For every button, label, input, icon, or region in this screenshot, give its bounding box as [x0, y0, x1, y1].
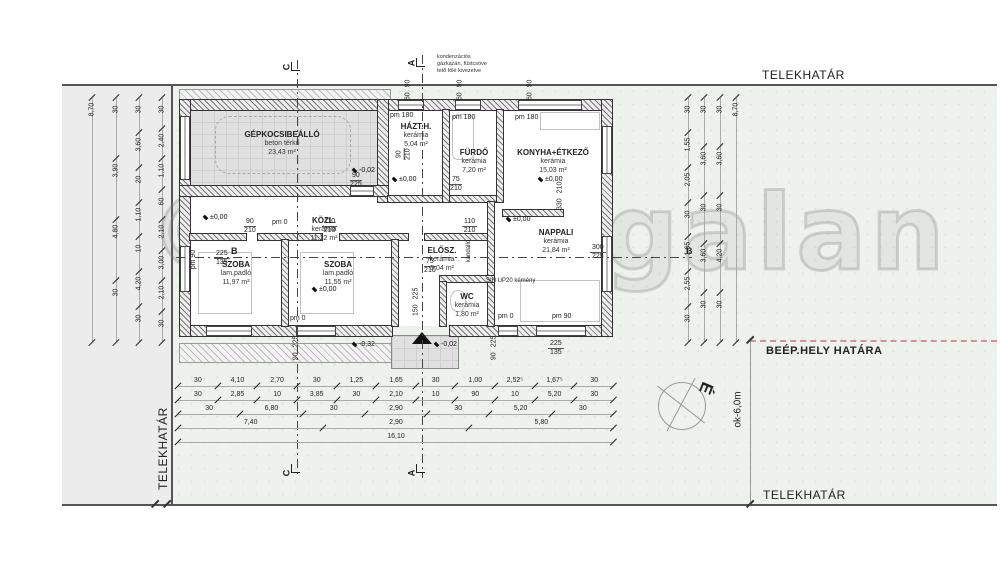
section-tick: [416, 58, 425, 67]
dim-segment: 30: [696, 98, 712, 147]
dim-segment: 90: [455, 391, 495, 403]
dim-segment: 1,67⁵: [535, 377, 575, 389]
dim-segment: 30: [131, 307, 147, 342]
section-letter-c-top: C: [281, 64, 291, 71]
window-south-szoba2: [296, 326, 336, 336]
room-label-elosz: ELŐSZ. kerámia 5,04 m²: [414, 246, 470, 274]
dim-segment: 20: [131, 168, 147, 203]
dim-segment: 2,52⁵: [495, 377, 535, 389]
dim-segment: 4,10: [218, 377, 258, 389]
dim-segment: 1,65: [376, 377, 416, 389]
telekhatar-label-top: TELEKHATÁR: [762, 68, 845, 82]
room-label-konyha: KONYHA+ÉTKEZŐ kerámia 15,03 m²: [505, 148, 601, 176]
plot-boundary-bottom: [62, 504, 997, 506]
dim-chain-right-1: 301,552,05301,652,5530: [680, 98, 696, 342]
dim-segment: 10: [495, 391, 535, 403]
dim-chain-left-2: 303,904,8030: [108, 98, 124, 342]
level-mark: -0,02: [434, 341, 457, 348]
dim-segment: 2,55: [680, 272, 696, 307]
room-label-garage: GÉPKOCSIBEÁLLÓ beton térkő 23,43 m²: [222, 130, 342, 158]
dim-segment: 1,00: [455, 377, 495, 389]
dim-segment: 30: [154, 98, 170, 129]
driveway-strip: [180, 90, 390, 100]
dim-chain-bottom-total: 16,10: [178, 433, 614, 445]
room-label-wc: WC kerámia 1,80 m²: [446, 292, 488, 320]
level-flag-icon: [434, 342, 440, 348]
dim-segment: 30: [416, 377, 456, 389]
level-mark: ±0,00: [506, 216, 530, 223]
telekhatar-label-bottom: TELEKHATÁR: [763, 488, 846, 502]
opening-label-kozl-door1: 110210: [322, 218, 337, 234]
section-tick: [291, 464, 300, 473]
level-flag-icon: [392, 177, 398, 183]
opening-label-szoba1-door: 90210: [244, 218, 256, 234]
section-letter-a-bottom: A: [406, 470, 416, 477]
dim-segment: 1,10: [154, 159, 170, 190]
dim-segment: 30: [178, 405, 240, 417]
chimney-note: SIH UP20 kémény: [486, 278, 535, 284]
telekhatar-label-left: TELEKHATÁR: [156, 400, 170, 490]
opening-label-wc-door: 75210: [424, 258, 436, 274]
dim-segment: 2,05: [680, 168, 696, 203]
opening-label-nappali-south-window2: 225135: [548, 340, 564, 356]
dim-segment: 30: [680, 98, 696, 133]
dim-segment: 30: [680, 307, 696, 342]
dim-segment: 4,20: [712, 244, 728, 293]
dim-segment: 2,70: [257, 377, 297, 389]
level-flag-icon: [203, 215, 209, 221]
window-south-nappali1: [498, 326, 518, 336]
dim-segment: 7,40: [178, 419, 323, 431]
dim-segment: 2,10: [154, 281, 170, 312]
plot-boundary-left: [171, 85, 173, 505]
dim-segment: 30: [712, 98, 728, 147]
fireplace-note: kandalló: [466, 240, 472, 262]
dim-segment: 10: [416, 391, 456, 403]
dim-segment: 5,20: [535, 391, 575, 403]
dim-segment: 3,60: [696, 244, 712, 293]
dim-chain-bottom-2: 302,85103,85302,101090105,2030: [178, 391, 614, 403]
level-flag-icon: [538, 177, 544, 183]
wall-szoba2-elosz: [392, 240, 398, 326]
window-west-szoba1: [180, 246, 190, 292]
dim-segment: 5,80: [469, 419, 614, 431]
section-tick: [416, 464, 425, 473]
setback-line: [750, 341, 751, 505]
dim-segment: 3,90: [108, 159, 124, 220]
dim-segment: 30: [108, 281, 124, 342]
dim-chain-left-3: 303,60201,10104,2030: [131, 98, 147, 342]
dim-segment: 30: [108, 98, 124, 159]
dim-segment: 2,10: [376, 391, 416, 403]
parapet-label: pm 90: [552, 313, 571, 320]
dim-segment: 4,20: [131, 272, 147, 307]
wall-corridor-south-1: [190, 234, 246, 240]
dim-chain-right-total: 8,70: [728, 98, 744, 342]
dim-segment: 30: [427, 405, 489, 417]
dim-segment: 1,25: [337, 377, 377, 389]
dim-segment: 2,40: [154, 129, 170, 160]
dim-segment: 30: [696, 293, 712, 342]
room-label-szoba2: SZOBA lam.padló 11,55 m²: [306, 260, 370, 288]
parapet-label: pm 0: [290, 315, 306, 322]
dim-segment: 1,55: [680, 133, 696, 168]
dim-segment: 2,10: [154, 220, 170, 251]
dim-segment: 30: [297, 377, 337, 389]
dim-chain-bottom-3: 306,80302,90305,2030: [178, 405, 614, 417]
dim-chain-bottom-1: 304,102,70301,251,65301,002,52⁵1,67⁵30: [178, 377, 614, 389]
parapet-label: pm 180: [452, 114, 475, 121]
dim-segment: 10: [131, 237, 147, 272]
opening-label-west-window: 225135: [214, 250, 230, 266]
dim-segment: 30: [712, 293, 728, 342]
dim-segment: 60: [154, 190, 170, 221]
dim-segment: 1,10: [131, 203, 147, 238]
section-tick: [291, 62, 300, 71]
room-label-hazth: HÁZT.H. kerámia 5,04 m²: [388, 122, 444, 150]
dim-segment: 30: [131, 98, 147, 133]
level-mark: ±0,00: [392, 176, 416, 183]
dim-segment: 6,80: [240, 405, 302, 417]
parapet-label: pm 180: [390, 112, 413, 119]
dim-segment: 8,70: [84, 98, 100, 342]
section-letter-c-bottom: C: [281, 470, 291, 477]
parapet-label: pm 180: [515, 114, 538, 121]
setback-dim-label: ok-6,0m: [733, 384, 744, 428]
level-mark: -0,32: [352, 341, 375, 348]
room-label-nappali: NAPPALI kerámia 21,84 m²: [520, 228, 592, 256]
level-flag-icon: [506, 217, 512, 223]
parapet-label: pm 0: [498, 313, 514, 320]
section-letter-a-top: A: [406, 60, 416, 67]
dim-segment: 1,65: [680, 237, 696, 272]
dim-chain-left-4: 302,401,10602,103,002,1030: [154, 98, 170, 342]
dim-segment: 16,10: [178, 433, 614, 445]
section-letter-b-left: B: [231, 246, 238, 256]
dim-segment: 3,00: [154, 251, 170, 282]
dim-segment: 30: [337, 391, 377, 403]
dim-chain-right-3: 303,60304,2030: [712, 98, 728, 342]
dim-segment: 2,90: [323, 419, 468, 431]
opening-label-furdo-door: 75210: [450, 176, 462, 192]
wall-corridor-south-4: [425, 234, 494, 240]
opening-label-kitchen-window: 330210: [556, 182, 564, 210]
dim-segment: 2,85: [218, 391, 258, 403]
opening-label-top-window2: 6090: [456, 80, 464, 101]
dim-segment: 30: [574, 391, 614, 403]
kitchen-counter: [540, 112, 600, 130]
dim-segment: 30: [552, 405, 614, 417]
dim-segment: 3,60: [131, 133, 147, 168]
parapet-label: pm 0: [272, 219, 288, 226]
opening-label-szoba2-south-window: 90225: [292, 336, 300, 360]
dim-segment: 30: [574, 377, 614, 389]
dim-segment: 3,85: [297, 391, 337, 403]
dim-segment: 4,80: [108, 220, 124, 281]
carport-opening: [180, 116, 190, 180]
opening-label-top-window1: 6090: [404, 80, 412, 101]
opening-label-garage-exit: 90225: [350, 172, 362, 188]
level-mark: ±0,00: [312, 286, 336, 293]
window-south-szoba1: [206, 326, 252, 336]
dim-segment: 5,20: [489, 405, 551, 417]
dim-chain-bottom-4: 7,402,905,80: [178, 419, 614, 431]
dim-segment: 3,60: [696, 147, 712, 196]
beep-hely-label: BEÉP.HELY HATÁRA: [766, 345, 882, 357]
opening-label-kozl-door2: 110210: [462, 218, 477, 234]
dim-chain-left-total: 8,70: [84, 98, 100, 342]
dim-segment: 30: [696, 196, 712, 245]
dim-segment: 30: [712, 196, 728, 245]
building-limit-line: [750, 340, 997, 342]
window-south-nappali2: [536, 326, 586, 336]
opening-label-hazth-door: 90210: [396, 148, 412, 160]
dim-segment: 30: [154, 312, 170, 343]
dim-segment: 30: [303, 405, 365, 417]
dim-segment: 30: [178, 377, 218, 389]
opening-label-nappali-south-window1: 90225: [490, 336, 498, 360]
dim-segment: 30: [178, 391, 218, 403]
boiler-annotation: kondenzációs gázkazán, füstcsöve tető fö…: [437, 54, 487, 75]
window-east-kitchen: [602, 126, 612, 174]
opening-label-east-window: 300225: [590, 244, 606, 260]
window-north-hazth: [398, 100, 424, 110]
dim-segment: 2,90: [365, 405, 427, 417]
dim-chain-right-2: 303,60303,6030: [696, 98, 712, 342]
level-flag-icon: [312, 287, 318, 293]
level-flag-icon: [352, 342, 358, 348]
opening-label-top-window3: 6090: [526, 80, 534, 101]
opening-label-entry-door: 150225: [412, 288, 420, 316]
parapet-label: pm 90: [190, 250, 197, 269]
wall-szoba-divider: [282, 240, 288, 326]
dim-segment: 8,70: [728, 98, 744, 342]
wall-south-east: [450, 326, 612, 336]
dim-segment: 10: [257, 391, 297, 403]
window-north-furdo: [455, 100, 481, 110]
dim-segment: 3,60: [712, 147, 728, 196]
dim-segment: 30: [680, 203, 696, 238]
level-mark: ±0,00: [203, 214, 227, 221]
wall-elosz-nappali: [488, 202, 494, 326]
room-label-furdo: FÜRDŐ kerámia 7,20 m²: [448, 148, 500, 176]
window-north-kitchen: [518, 100, 582, 110]
